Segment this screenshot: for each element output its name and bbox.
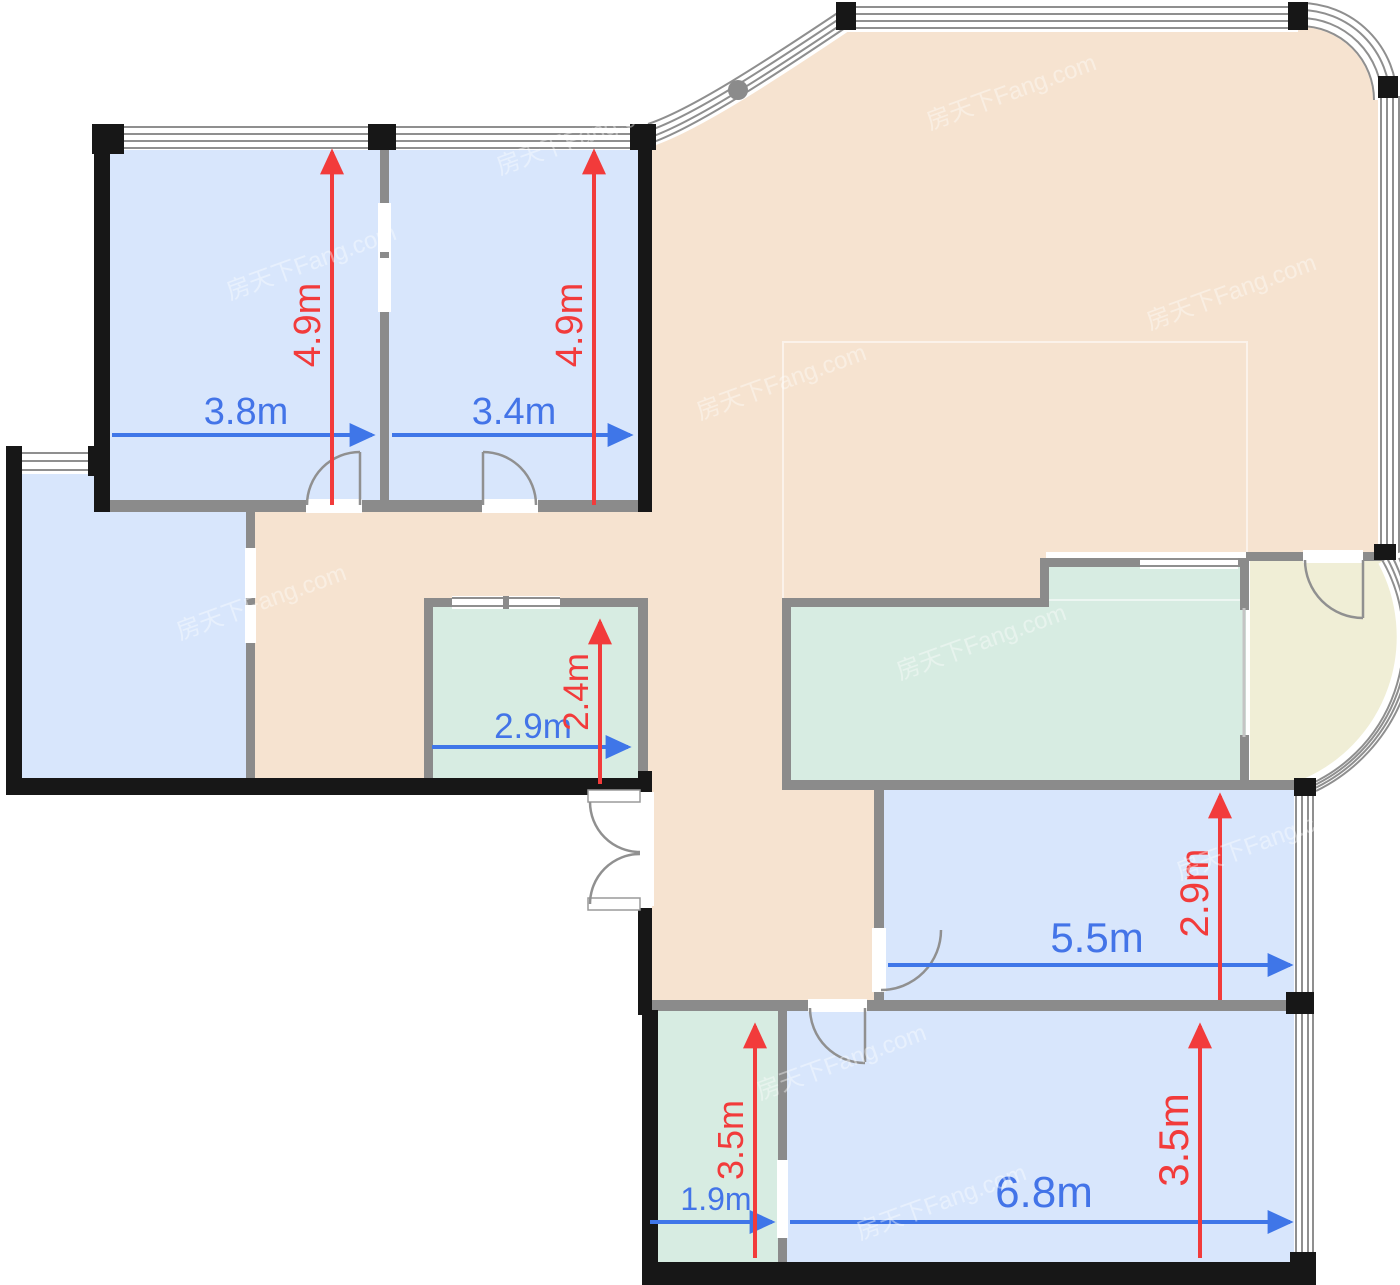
window-kitchen-pass bbox=[1140, 556, 1238, 569]
curve-node bbox=[728, 80, 748, 100]
corner-post bbox=[1290, 1252, 1316, 1284]
wall-segment bbox=[874, 786, 884, 930]
sliding-opening bbox=[777, 1160, 788, 1238]
room-bathroom bbox=[426, 600, 641, 788]
wall-segment bbox=[638, 126, 652, 512]
wall-segment bbox=[360, 500, 483, 512]
wall-segment bbox=[424, 598, 454, 607]
wall-segment bbox=[784, 598, 1044, 607]
wall-segment bbox=[778, 1238, 787, 1266]
room-fills bbox=[18, 24, 1400, 1266]
wall-segment bbox=[380, 146, 389, 205]
wall-segment bbox=[380, 252, 389, 258]
corner-post bbox=[836, 2, 856, 30]
wall-segment bbox=[246, 643, 255, 788]
corner-post bbox=[368, 124, 396, 150]
wall-segment bbox=[638, 598, 648, 790]
wall-segment bbox=[782, 598, 791, 790]
wall-segment bbox=[865, 1000, 1304, 1011]
dim-label-bathroom-depth: 2.4m bbox=[557, 653, 596, 731]
corner-post bbox=[1288, 2, 1308, 30]
wall-segment bbox=[1044, 558, 1140, 567]
dim-label-bedroom-right-width: 3.4m bbox=[472, 391, 556, 433]
dim-label-mid-room-width: 5.5m bbox=[1050, 914, 1143, 961]
room-mid-right bbox=[880, 788, 1302, 1008]
wall-segment bbox=[642, 1262, 1316, 1285]
dim-label-bottom-small-width: 1.9m bbox=[680, 1181, 751, 1217]
dim-label-bedroom-left-width: 3.8m bbox=[204, 391, 288, 433]
floorplan-canvas: 3.8m 3.4m 2.9m 5.5m 1.9m 6.8m 4.9m 4.9m … bbox=[0, 0, 1400, 1285]
entry-double-door bbox=[588, 790, 654, 910]
wall-segment bbox=[638, 908, 652, 1015]
wall-segment bbox=[642, 1010, 658, 1272]
wall-segment bbox=[6, 778, 652, 795]
wall-segment bbox=[94, 500, 307, 512]
window-bathroom bbox=[452, 596, 560, 609]
dim-label-bottom-small-depth: 3.5m bbox=[710, 1100, 751, 1180]
door-opening bbox=[1303, 550, 1363, 563]
corner-post bbox=[1294, 778, 1316, 796]
door-opening bbox=[872, 928, 886, 992]
wall-segment bbox=[1240, 560, 1249, 610]
door-opening bbox=[808, 999, 867, 1012]
wall-segment bbox=[1246, 552, 1303, 561]
wall-segment bbox=[782, 780, 1304, 790]
dim-label-bedroom-right-depth: 4.9m bbox=[549, 283, 591, 367]
corner-post bbox=[1378, 76, 1398, 98]
floorplan-svg: 3.8m 3.4m 2.9m 5.5m 1.9m 6.8m 4.9m 4.9m … bbox=[0, 0, 1400, 1285]
corner-post bbox=[88, 446, 110, 476]
corner-post bbox=[92, 124, 124, 154]
corner-post bbox=[1374, 544, 1396, 560]
room-bedroom-top-right bbox=[388, 132, 640, 508]
wall-segment bbox=[6, 455, 22, 795]
wall-segment bbox=[246, 510, 255, 548]
room-bedroom-top-left bbox=[108, 132, 384, 508]
wall-segment bbox=[536, 500, 640, 512]
wall-segment bbox=[558, 598, 642, 607]
wall-segment bbox=[424, 598, 433, 790]
corner-post bbox=[1286, 992, 1314, 1014]
dim-label-bedroom-left-depth: 4.9m bbox=[287, 283, 329, 367]
wall-segment bbox=[648, 1000, 810, 1011]
door-opening bbox=[482, 499, 538, 513]
room-balcony bbox=[1250, 554, 1400, 792]
wall-segment bbox=[380, 310, 389, 506]
dim-label-bottom-large-depth: 3.5m bbox=[1150, 1093, 1197, 1186]
